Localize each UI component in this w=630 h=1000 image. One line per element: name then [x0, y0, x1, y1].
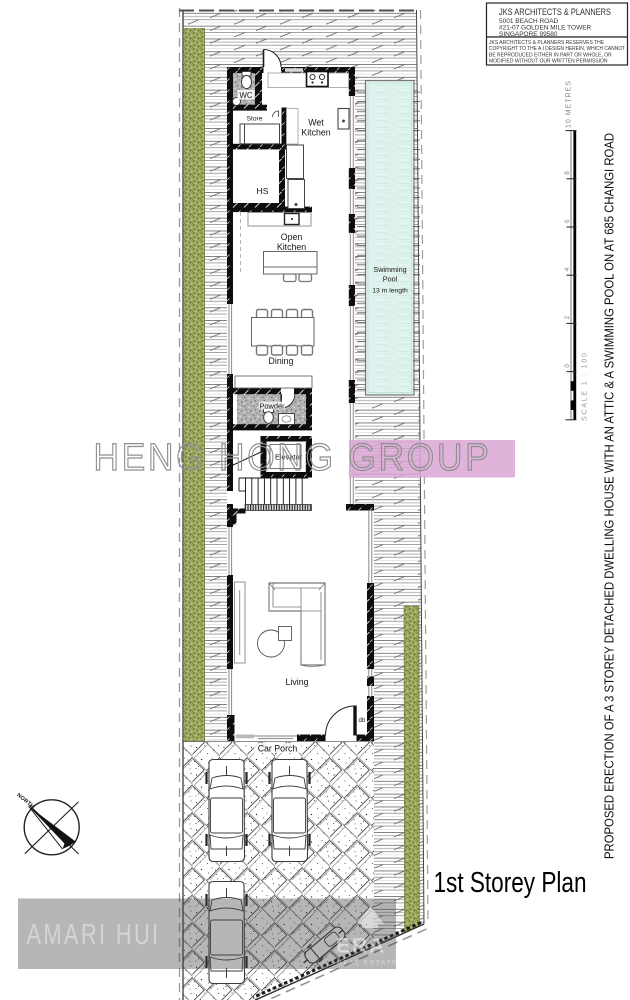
- svg-text:HS: HS: [257, 186, 269, 196]
- svg-text:COPYRIGHT TO THE A.I DESIGN HE: COPYRIGHT TO THE A.I DESIGN HEREIN, WHIC…: [489, 46, 625, 52]
- svg-text:SCALE 1 : 100: SCALE 1 : 100: [582, 351, 589, 421]
- svg-text:Store: Store: [247, 116, 263, 123]
- svg-text:6: 6: [564, 219, 571, 223]
- svg-text:10 METRES: 10 METRES: [566, 80, 573, 128]
- svg-text:JKS ARCHITECTS & PLANNERS RESE: JKS ARCHITECTS & PLANNERS RESERVES THE: [489, 40, 605, 46]
- svg-text:8: 8: [564, 171, 571, 175]
- svg-text:2: 2: [564, 315, 571, 319]
- svg-text:REAL ESTATE: REAL ESTATE: [337, 960, 398, 967]
- svg-text:WC: WC: [239, 91, 253, 100]
- svg-text:Powder: Powder: [259, 402, 285, 411]
- svg-text:AMARI HUI: AMARI HUI: [27, 919, 161, 951]
- svg-text:0: 0: [564, 364, 571, 368]
- svg-text:Open: Open: [281, 232, 303, 242]
- svg-text:13 m length: 13 m length: [372, 288, 408, 295]
- svg-text:MODIFIED WITHOUT OUR WRITTEN P: MODIFIED WITHOUT OUR WRITTEN PERMISSION: [489, 59, 608, 65]
- svg-text:Car Porch: Car Porch: [258, 744, 298, 754]
- svg-text:ERA: ERA: [336, 935, 386, 958]
- svg-text:JKS ARCHITECTS & PLANNERS: JKS ARCHITECTS & PLANNERS: [499, 7, 611, 17]
- svg-text:Pool: Pool: [383, 275, 398, 284]
- svg-text:4: 4: [564, 267, 571, 271]
- svg-text:Swimming: Swimming: [373, 265, 406, 274]
- svg-text:PROPOSED ERECTION OF A 3 STORE: PROPOSED ERECTION OF A 3 STOREY DETACHED…: [603, 133, 617, 859]
- svg-text:1st Storey Plan: 1st Storey Plan: [434, 867, 587, 899]
- svg-text:Dining: Dining: [269, 356, 294, 366]
- svg-text:HENG HONG GROUP: HENG HONG GROUP: [94, 437, 492, 479]
- svg-text:Kitchen: Kitchen: [301, 128, 330, 138]
- svg-text:BE REPRODUCED EITHER IN PART O: BE REPRODUCED EITHER IN PART OR WHOLE, O…: [489, 52, 612, 58]
- svg-text:Kitchen: Kitchen: [277, 242, 306, 252]
- svg-text:Wet: Wet: [308, 118, 324, 128]
- svg-text:db: db: [359, 718, 366, 724]
- svg-text:Living: Living: [286, 677, 309, 687]
